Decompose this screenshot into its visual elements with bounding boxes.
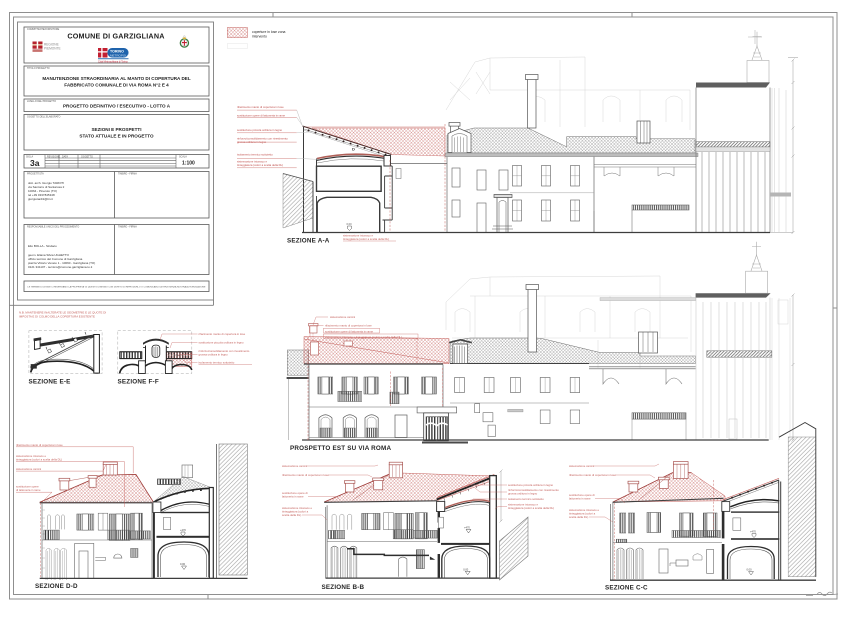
svg-text:scelta della DL): scelta della DL) (569, 515, 588, 519)
svg-text:OGGETTO DELL'ELABORATO: OGGETTO DELL'ELABORATO (27, 116, 61, 119)
svg-text:FABBRICATO COMUNALE DI VIA ROM: FABBRICATO COMUNALE DI VIA ROMA N°2 E 4 (64, 83, 169, 88)
svg-text:coperture in lose zona: coperture in lose zona (252, 30, 285, 34)
svg-text:LE TERMINI DI LEGGE CI RISERVI: LE TERMINI DI LEGGE CI RISERVIAMO LA PRO… (28, 286, 206, 289)
svg-text:REVISIONE: REVISIONE (47, 155, 60, 158)
svg-text:Città Metropolitana di Torino: Città Metropolitana di Torino (98, 60, 128, 63)
svg-text:PROGETTISTA: PROGETTISTA (27, 173, 44, 176)
svg-text:LIVELLO DEL PROGETTO: LIVELLO DEL PROGETTO (27, 100, 56, 103)
svg-text:D: D (352, 147, 355, 152)
svg-text:METROPOLI: METROPOLI (110, 53, 128, 57)
svg-text:TIMBRO - FIRMA: TIMBRO - FIRMA (118, 226, 137, 229)
svg-text:isolamento termico sottotetto: isolamento termico sottotetto (199, 361, 235, 365)
svg-text:PROSPETTO EST SU VIA ROMA: PROSPETTO EST SU VIA ROMA (290, 445, 391, 452)
svg-text:RESPONSABILE UNICO DEL PROCEDI: RESPONSABILE UNICO DEL PROCEDIMENTO (27, 226, 79, 229)
svg-text:rifacimento manto di copertura: rifacimento manto di copertura in lose (569, 473, 616, 477)
svg-text:COMUNE DI GARZIGLIANA: COMUNE DI GARZIGLIANA (67, 32, 164, 41)
svg-text:sistemazione camini: sistemazione camini (16, 467, 42, 471)
svg-text:sistemazione intonaco e tinteg: sistemazione intonaco e tinteggiatura (c… (325, 335, 402, 339)
svg-text:intervento: intervento (252, 35, 267, 39)
svg-text:PROGETTO DEFINITIVO / ESECUTIV: PROGETTO DEFINITIVO / ESECUTIVO - LOTTO … (63, 104, 171, 109)
svg-text:di lattoneria in rame: di lattoneria in rame (16, 488, 41, 492)
svg-text:sostituzione opere di lattoner: sostituzione opere di lattoneria in rame (237, 114, 285, 118)
svg-text:0121 341107 - tecnico@comune.g: 0121 341107 - tecnico@comune.garzigliana… (28, 265, 92, 269)
svg-text:+470: +470 (464, 525, 470, 529)
svg-text:rifacimento manto di copertura: rifacimento manto di copertura in lose (282, 473, 329, 477)
svg-text:tinteggiatura (colori a scelta: tinteggiatura (colori a scelta della DL) (343, 237, 389, 241)
svg-text:DATA: DATA (62, 155, 68, 158)
svg-text:SEZIONE E-E: SEZIONE E-E (29, 379, 71, 386)
svg-text:SIGLA: SIGLA (26, 155, 33, 158)
svg-text:giorgiotarditi@tin.it: giorgiotarditi@tin.it (28, 197, 53, 201)
svg-text:TIMBRO - FIRMA: TIMBRO - FIRMA (118, 173, 137, 176)
svg-text:sistemazione camini: sistemazione camini (282, 464, 308, 468)
svg-text:rifacimento manto di copertura: rifacimento manto di copertura in lose (237, 105, 284, 109)
svg-text:1:100: 1:100 (182, 161, 195, 167)
svg-text:SEZIONE C-C: SEZIONE C-C (605, 585, 648, 592)
svg-text:scelta della DL): scelta della DL) (282, 513, 301, 517)
svg-text:SEZIONE B-B: SEZIONE B-B (322, 584, 365, 591)
svg-text:tinteggiatura (colori a scelta: tinteggiatura (colori a scelta della DL) (237, 163, 283, 167)
svg-text:sistemazione camini: sistemazione camini (569, 464, 595, 468)
svg-text:PIEMONTE: PIEMONTE (44, 46, 61, 50)
svg-text:+470: +470 (750, 530, 756, 534)
svg-text:isolamento termico sottotetto: isolamento termico sottotetto (237, 153, 273, 157)
svg-text:rifacimento manto di copertura: rifacimento manto di copertura in lose (16, 443, 63, 447)
svg-text:grossa orditura in legno: grossa orditura in legno (199, 353, 229, 357)
svg-text:Elio BOLLA - Sindaco: Elio BOLLA - Sindaco (28, 244, 57, 248)
svg-text:sostituzione piccola orditura: sostituzione piccola orditura in legno (199, 341, 245, 345)
svg-text:0.00: 0.00 (180, 562, 186, 566)
svg-text:sostituzione piccola orditura: sostituzione piccola orditura in legno (508, 483, 554, 487)
svg-text:IMPOSTA E DI COLMO DELLA COPE: IMPOSTA E DI COLMO DELLA COPERTURA ESIST… (19, 315, 95, 319)
svg-text:0.00: 0.00 (747, 568, 753, 572)
svg-text:MANUTENZIONE STRAORDINARIA AL: MANUTENZIONE STRAORDINARIA AL MANTO DI C… (42, 76, 191, 81)
svg-text:rifacimento manto di copertura: rifacimento manto di copertura in lose (325, 324, 372, 328)
svg-text:0.00: 0.00 (347, 222, 353, 226)
svg-text:SEZIONI E PROSPETTI: SEZIONI E PROSPETTI (91, 127, 141, 132)
svg-text:STATO ATTUALE E IN PROGETTO: STATO ATTUALE E IN PROGETTO (79, 134, 154, 139)
svg-text:grossa orditura in legno: grossa orditura in legno (508, 492, 538, 496)
svg-text:SEZIONE A-A: SEZIONE A-A (287, 238, 330, 245)
svg-text:lattoneria in rame: lattoneria in rame (569, 497, 591, 501)
svg-text:sistemazione camini: sistemazione camini (330, 315, 356, 319)
svg-text:sostituzione piccola orditura: sostituzione piccola orditura in legno (237, 128, 283, 132)
svg-text:SEZIONE D-D: SEZIONE D-D (35, 583, 78, 590)
svg-text:TITOLO PROGETTO: TITOLO PROGETTO (27, 67, 50, 70)
svg-text:3a: 3a (30, 158, 40, 168)
svg-text:sostituzione opere di lattoner: sostituzione opere di lattoneria in rame (325, 329, 373, 333)
svg-text:0.00: 0.00 (463, 567, 469, 571)
svg-text:SEZIONE F-F: SEZIONE F-F (118, 379, 159, 386)
svg-text:lattoneria in rame: lattoneria in rame (282, 495, 304, 499)
svg-text:rifacimento manto di copertura: rifacimento manto di copertura in lose (199, 332, 246, 336)
svg-text:+470: +470 (180, 528, 186, 532)
svg-text:isolamento termico sottotetto: isolamento termico sottotetto (508, 497, 544, 501)
svg-text:tinteggiatura (colori a scelta: tinteggiatura (colori a scelta della DL) (16, 457, 62, 461)
svg-text:tinteggiatura (colori a scelta: tinteggiatura (colori a scelta della DL) (508, 506, 554, 510)
svg-text:SCALA: SCALA (179, 155, 187, 158)
svg-text:COMMITTENTE/FORNITORE: COMMITTENTE/FORNITORE (27, 28, 60, 31)
svg-text:OGGETTO: OGGETTO (81, 155, 93, 158)
